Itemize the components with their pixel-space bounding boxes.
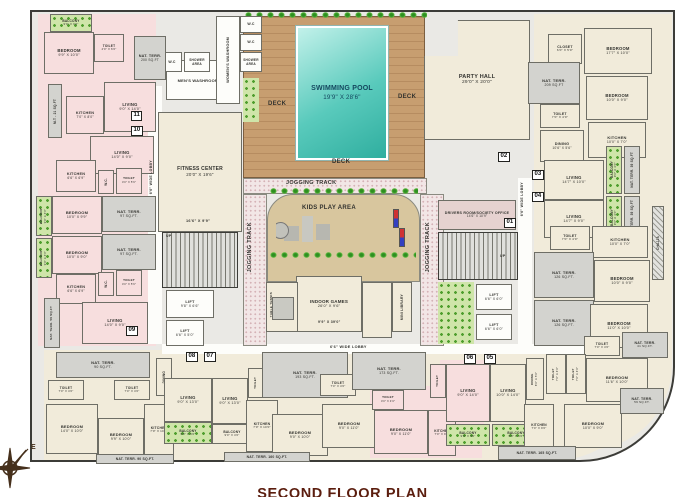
indoor-games-label: INDOOR GAMES26'0" X 9'6" [310, 299, 348, 310]
kitchen-09-dim: 6'6" X 6'9" [67, 289, 84, 293]
fitness-center-dim: 20'0" X 19'6" [186, 172, 213, 178]
mens-washroom-label: MEN'S WASHROOM [178, 78, 219, 83]
living-05: LIVING10'0" X 14'0" [490, 364, 526, 422]
nat-terr-59b-label: NAT. TERR.59 SQ.FT. [632, 397, 653, 405]
nat-terr-165-name: NAT. TERR. 165 SQ.FT. [517, 451, 558, 455]
shower-area-womens-label: SHOWER AREA [241, 58, 261, 66]
nat-terr-39a-label: NAT. TERR. 39 SQ.FT [630, 152, 634, 188]
swimming-pool-label: SWIMMING POOL19'9" X 28'6" [311, 85, 373, 101]
closet-02: CLOSET6'0" X 5'0" [548, 34, 582, 64]
play-equipment [276, 212, 334, 246]
balcony-08-dim: 9'0" X 4'0" [181, 433, 196, 437]
nat-terr-41: NAT. TERR.41 SQ.FT. [622, 332, 668, 358]
dining-03-label: DINING10'6" X 5'6" [552, 142, 571, 151]
nat-terr-90b-label: NAT. TERR. 90 SQ.FT. [116, 457, 155, 461]
wc-mens-label: W.C [168, 60, 175, 64]
nat-terr-90b: NAT. TERR. 90 SQ.FT. [96, 454, 174, 464]
balcony-10: BALCONY9'0" X 3'3" [36, 196, 52, 236]
toilet-04a-dim: 7'0" X 4'0" [562, 238, 578, 242]
toilet-10-label: TOILET4'0" X 5'6" [122, 177, 136, 184]
unit-badge-09: 09 [126, 326, 138, 336]
mt-21-label: M.T - 21 SQ.FT [53, 99, 57, 124]
table-tennis-label: TABLE TENNIS [269, 292, 273, 317]
living-04-label: LIVING14'7" X 9'0" [563, 214, 584, 224]
wc-womens-1-label: W.C [247, 22, 254, 26]
toilet-10: TOILET4'0" X 5'6" [116, 168, 142, 194]
up-label-right: UP [500, 254, 505, 258]
kitchen-03-label: KITCHEN10'0" X 7'0" [607, 135, 627, 144]
closet-02-label: CLOSET6'0" X 5'0" [557, 45, 573, 53]
lift-1: LIFT9'8" X 6'6" [166, 290, 214, 318]
party-hall-dim: 29'0" X 20'0" [462, 80, 492, 86]
toilet-06a-label: TOILET4'0" X 4'9" [381, 396, 395, 403]
lobby-label-left: 6'6" WIDE LOBBY [149, 160, 153, 194]
compass-icon: E [0, 436, 42, 494]
trees-row-boundary [243, 10, 427, 18]
closet-02-dim: 6'0" X 5'0" [557, 49, 573, 53]
bedroom-04b-label: BEDROOM11'0" X 10'0" [607, 321, 630, 331]
toilet-03-dim: 7'0" X 4'0" [552, 116, 568, 120]
kitchen-10-dim: 6'6" X 6'9" [67, 176, 84, 180]
party-hall-label: PARTY HALL29'0" X 20'0" [459, 74, 495, 87]
toilet-05a-dim: 7'0" X 4'0" [556, 367, 559, 381]
mini-library-name: MINI LIBRARY [400, 294, 404, 320]
jogging-track-label-top: JOGGING TRACK [286, 180, 336, 186]
toilet-06b-label: TOILET [436, 375, 440, 387]
bedroom-07b-label: BEDROOM9'0" X 11'0" [338, 421, 360, 430]
kitchen-09-label: KITCHEN6'6" X 6'9" [67, 285, 85, 294]
wc-womens-2: W.C [240, 34, 262, 51]
nat-terr-59b: NAT. TERR.59 SQ.FT. [620, 388, 664, 414]
lift-1-label: LIFT9'8" X 6'6" [181, 299, 199, 308]
mt-21-name: M.T - 21 SQ.FT [53, 99, 57, 124]
balcony-03: BALCONY9'0" X 4'0" [606, 146, 622, 194]
wc-09-name: W.C. [104, 280, 108, 288]
unit-badge-02: 02 [498, 152, 510, 162]
kitchen-05: KITCHEN7'0" X 9'0" [524, 404, 554, 450]
unit-badge-06: 06 [464, 354, 476, 364]
kitchen-04-dim: 10'0" X 7'0" [610, 242, 630, 246]
bedroom-11-dim: 9'9" X 10'0" [58, 53, 79, 58]
balcony-05-label: BALCONY9'0" X 4'0" [507, 431, 524, 439]
bedroom-09-label: BEDROOM10'0" X 9'0" [66, 250, 88, 259]
toilet-11: TOILET4'0" X 6'0" [94, 34, 124, 62]
kitchen-11-label: KITCHEN7'0" X 8'0" [76, 111, 94, 120]
kitchen-04-label: KITCHEN10'0" X 7'0" [610, 237, 630, 246]
lift-3: LIFT6'6" X 6'0" [476, 284, 512, 310]
shower-area-womens: SHOWER AREA [240, 52, 262, 72]
chajja-label: CHAJJA [656, 236, 660, 250]
toilet-11-label: TOILET4'0" X 6'0" [102, 44, 117, 52]
drivers-room-dim: 14'6" X 10'9" [467, 215, 487, 219]
bedroom-07b: BEDROOM9'0" X 11'0" [322, 404, 376, 448]
balcony-07-dim: 9'0" X 4'0" [225, 434, 240, 438]
living-07: LIVING9'0" X 13'0" [212, 378, 248, 424]
kitchen-07-label: KITCHEN7'0" X 10'0" [253, 422, 271, 430]
nat-terr-200-dim: 200 SQ.FT [141, 58, 159, 62]
bedroom-08b-label: BEDROOM9'9" X 10'0" [110, 432, 132, 441]
womens-washroom: WOMEN'S WASHROOM [216, 16, 240, 104]
toilet-07b-label: TOILET7'0" X 4'0" [331, 381, 346, 389]
jogging-track-label-left: JOGGING TRACK [247, 222, 253, 272]
nat-terr-173: NAT. TERR.173 SQ.FT. [352, 352, 426, 390]
nat-terr-173-dim: 173 SQ.FT. [379, 371, 399, 375]
bedroom-07a-label: BEDROOM9'0" X 10'0" [289, 430, 311, 439]
balcony-08: BALCONY9'0" X 4'0" [164, 422, 212, 444]
toilet-03: TOILET7'0" X 4'0" [540, 104, 580, 128]
living-03-dim: 14'7" X 10'0" [562, 180, 585, 185]
balcony-11-dim: 9'0" X 3'0" [64, 23, 79, 27]
balcony-04-dim: 9'0" X 4'0" [614, 211, 618, 226]
shower-area-womens-name: SHOWER AREA [241, 58, 261, 66]
indoor-games-dim-label: 9'9" X 39'0" [318, 320, 341, 324]
kitchen-05-label: KITCHEN7'0" X 9'0" [531, 423, 547, 431]
staircase-right [438, 232, 518, 280]
balcony-03-dim: 9'0" X 4'0" [614, 163, 618, 178]
nat-terr-126b-label: NAT. TERR.126 SQ.FT. [552, 318, 576, 327]
swimming-pool-dim: 19'9" X 28'6" [323, 94, 360, 102]
lift-4-dim: 6'6" X 6'0" [485, 327, 503, 331]
nat-terr-209-label: NAT. TERR.209 SQ.FT [542, 78, 566, 87]
wc-womens-1-name: W.C [247, 22, 254, 26]
nat-terr-97a-label: NAT. TERR.97 SQ.FT. [117, 209, 141, 218]
balcony-06-dim: 9'0" X 4'0" [461, 435, 476, 439]
living-09: LIVING14'0" X 9'0" [82, 302, 148, 344]
trees-row-top [268, 186, 418, 198]
unit-badge-04: 04 [532, 192, 544, 202]
lift-2: LIFT6'6" X 5'0" [166, 320, 204, 346]
toilet-07b-dim: 7'0" X 4'0" [331, 385, 346, 389]
bedroom-02a-label: BEDROOM17'7" X 10'0" [606, 46, 629, 56]
nat-terr-126a-dim: 126 SQ.FT. [554, 275, 574, 279]
bedroom-02b: BEDROOM10'0" X 9'0" [586, 76, 648, 120]
bedroom-08b: BEDROOM9'9" X 10'0" [98, 418, 144, 456]
shower-area-mens-label: SHOWER AREA [185, 58, 209, 66]
toilet-09: TOILET4'0" X 5'6" [116, 270, 142, 296]
balcony-11: BALCONY9'0" X 3'0" [50, 14, 92, 32]
living-09-dim: 14'0" X 9'0" [104, 323, 125, 328]
toilet-04b: TOILET7'0" X 4'0" [584, 336, 620, 356]
dining-05-label: DINING8'0" X 5'0" [531, 372, 538, 386]
balcony-07-label: BALCONY9'0" X 4'0" [223, 430, 240, 438]
kitchen-04: KITCHEN10'0" X 7'0" [592, 226, 648, 258]
bedroom-11: BEDROOM9'9" X 10'0" [44, 32, 94, 74]
bedroom-04a-dim: 10'0" X 9'0" [611, 281, 632, 286]
seating-area [362, 282, 392, 338]
bedroom-02a-dim: 17'7" X 10'0" [606, 51, 629, 56]
kitchen-11-dim: 7'0" X 8'0" [76, 115, 93, 119]
bedroom-04b-dim: 11'0" X 10'0" [607, 326, 630, 331]
lift-3-dim: 6'6" X 6'0" [485, 297, 503, 301]
trees-row-mid [268, 250, 416, 262]
nat-terr-193-dim: 193 SQ.FT. [295, 375, 315, 379]
lift-4-label: LIFT6'6" X 6'0" [485, 322, 503, 331]
nat-terr-90a: NAT. TERR.90 SQ.FT. [56, 352, 150, 378]
balcony-05-dim: 9'0" X 4'0" [509, 435, 524, 439]
balcony-11-label: BALCONY9'0" X 3'0" [62, 19, 79, 27]
drivers-room-label: DRIVERS ROOM/SOCIETY OFFICE14'6" X 10'9" [445, 211, 509, 219]
living-07-label: LIVING9'0" X 13'0" [219, 396, 240, 406]
balcony-09: BALCONY9'0" X 3'3" [36, 238, 52, 278]
bedroom-08a-dim: 14'0" X 10'0" [61, 429, 83, 433]
balcony-06-label: BALCONY9'0" X 4'0" [459, 431, 476, 439]
deck-label-left: DECK [268, 101, 286, 107]
fitness-center-label: FITNESS CENTER20'0" X 19'6" [177, 166, 223, 178]
nat-terr-209: NAT. TERR.209 SQ.FT [528, 62, 580, 104]
nat-terr-165: NAT. TERR. 165 SQ.FT. [498, 446, 576, 460]
nat-terr-126a-label: NAT. TERR.126 SQ.FT. [552, 270, 576, 279]
toilet-03-label: TOILET7'0" X 4'0" [552, 112, 568, 120]
lobby-label-bottom: 6'6" WIDE LOBBY [330, 345, 367, 349]
toilet-05b-dim: 7'0" X 4'0" [576, 367, 579, 381]
toilet-04a-label: TOILET7'0" X 4'0" [562, 234, 578, 242]
lift-1-dim: 9'8" X 6'6" [181, 304, 199, 308]
living-10-dim: 14'0" X 9'0" [111, 155, 132, 160]
nat-terr-39a-name: NAT. TERR. 39 SQ.FT [630, 152, 634, 188]
kitchen-05-dim: 7'0" X 9'0" [532, 427, 547, 431]
mini-library-label: MINI LIBRARY [400, 294, 404, 320]
kitchen-10: KITCHEN6'6" X 6'9" [56, 160, 96, 192]
bedroom-05b: BEDROOM10'0" X 9'0" [564, 404, 622, 448]
wc-09: W.C. [98, 272, 114, 296]
toilet-09-dim: 4'0" X 5'6" [122, 283, 136, 286]
bedroom-05a-label: BEDROOM11'6" X 10'0" [606, 375, 628, 384]
unit-badge-11: 11 [131, 111, 142, 121]
bedroom-02b-label: BEDROOM10'0" X 9'0" [605, 93, 628, 103]
toilet-07a-name: TOILET [254, 377, 258, 389]
compass-e-label: E [31, 444, 36, 451]
toilet-04b-dim: 7'0" X 4'0" [595, 346, 610, 350]
toilet-04a: TOILET7'0" X 4'0" [550, 226, 590, 250]
chajja-name: CHAJJA [656, 236, 660, 250]
nat-terr-193-label: NAT. TERR.193 SQ.FT. [293, 370, 317, 379]
lift-2-dim: 6'6" X 5'0" [176, 333, 194, 337]
bedroom-10: BEDROOM10'0" X 9'9" [52, 196, 102, 234]
bedroom-07a: BEDROOM9'0" X 10'0" [272, 414, 328, 456]
jogging-track-label-right: JOGGING TRACK [425, 222, 431, 272]
womens-washroom-name: WOMEN'S WASHROOM [226, 37, 231, 83]
bedroom-05b-dim: 10'0" X 9'0" [583, 426, 603, 430]
kitchen-10-label: KITCHEN6'6" X 6'9" [67, 172, 85, 181]
chajja: CHAJJA [652, 206, 664, 280]
balcony-10-dim: 9'0" X 3'3" [44, 209, 47, 223]
bedroom-10-dim: 10'0" X 9'9" [67, 215, 87, 219]
living-04-dim: 14'7" X 9'0" [563, 219, 584, 224]
bedroom-02b-dim: 10'0" X 9'0" [606, 98, 627, 103]
kitchen-09: KITCHEN6'6" X 6'9" [56, 274, 96, 304]
toilet-08a-label: TOILET7'0" X 4'0" [59, 386, 74, 394]
plan-title: SECOND FLOOR PLAN [20, 486, 665, 497]
kitchen-03-dim: 10'0" X 7'0" [607, 140, 627, 144]
nat-terr-165-label: NAT. TERR. 165 SQ.FT. [517, 451, 558, 455]
fitness-dim-label: 16'6" X 9'9" [186, 219, 210, 223]
wc-womens-1: W.C [240, 16, 262, 33]
bedroom-06-dim: 9'0" X 11'0" [391, 432, 411, 436]
toilet-06b-name: TOILET [436, 375, 440, 387]
living-08-dim: 9'0" X 13'0" [177, 400, 198, 405]
deck-label-right: DECK [398, 94, 416, 100]
dining-05: DINING8'0" X 5'0" [526, 358, 544, 400]
lift-3-label: LIFT6'6" X 6'0" [485, 292, 503, 301]
living-03: LIVING14'7" X 10'0" [544, 160, 604, 200]
unit-badge-05: 05 [484, 354, 496, 364]
mens-washroom-name: MEN'S WASHROOM [178, 78, 219, 83]
nat-terr-90b-name: NAT. TERR. 90 SQ.FT. [116, 457, 155, 461]
wc-10: W.C. [98, 170, 114, 194]
nat-terr-97b-label: NAT. TERR.97 SQ.FT. [117, 247, 141, 256]
nat-terr-209-dim: 209 SQ.FT [544, 83, 563, 87]
bedroom-06: BEDROOM9'0" X 11'0" [374, 410, 428, 454]
nat-terr-59a: NAT. TERR. 59 SQ.FT [44, 298, 60, 348]
living-05-dim: 10'0" X 14'0" [496, 393, 519, 398]
toilet-05a: TOILET7'0" X 4'0" [546, 354, 566, 394]
bedroom-04a-label: BEDROOM10'0" X 9'0" [610, 276, 633, 286]
living-06: LIVING9'0" X 14'0" [446, 364, 490, 422]
nat-terr-59b-dim: 59 SQ.FT. [634, 401, 650, 405]
toilet-08a-dim: 7'0" X 4'0" [59, 390, 74, 394]
wc-womens-2-name: W.C [247, 40, 254, 44]
toilet-04b-label: TOILET7'0" X 4'0" [595, 342, 610, 350]
wc-09-label: W.C. [104, 280, 108, 288]
toilet-09-label: TOILET4'0" X 5'6" [122, 279, 136, 286]
nat-terr-126b-dim: 126 SQ.FT. [554, 323, 574, 327]
unit-badge-07: 07 [204, 352, 216, 362]
toilet-05a-label: TOILET7'0" X 4'0" [552, 367, 559, 381]
nat-terr-97b: NAT. TERR.97 SQ.FT. [102, 234, 156, 270]
nat-terr-200: NAT. TERR.200 SQ.FT [134, 36, 166, 80]
nat-terr-59a-label: NAT. TERR. 59 SQ.FT [50, 306, 54, 340]
up-label-left: UP [166, 234, 171, 238]
bedroom-08a: BEDROOM14'0" X 10'0" [46, 404, 98, 454]
indoor-games-dim: 26'0" X 9'6" [318, 304, 341, 309]
living-05-label: LIVING10'0" X 14'0" [496, 388, 519, 398]
toilet-05b: TOILET7'0" X 4'0" [566, 354, 586, 394]
nat-terr-173-label: NAT. TERR.173 SQ.FT. [377, 366, 401, 375]
nat-terr-97a: NAT. TERR.97 SQ.FT. [102, 196, 156, 232]
nat-terr-97b-dim: 97 SQ.FT. [120, 252, 138, 256]
bedroom-07b-dim: 9'0" X 11'0" [339, 426, 359, 430]
lobby-label-right: 6'6" WIDE LOBBY [520, 182, 524, 216]
balcony-04-label: BALCONY9'0" X 4'0" [610, 209, 618, 226]
kitchen-11: KITCHEN7'0" X 8'0" [66, 96, 104, 134]
womens-washroom-label: WOMEN'S WASHROOM [226, 37, 231, 83]
nat-terr-90a-label: NAT. TERR.90 SQ.FT. [91, 360, 115, 369]
wc-10-label: W.C. [104, 178, 108, 186]
bedroom-05b-label: BEDROOM10'0" X 9'0" [582, 421, 604, 430]
bedroom-06-label: BEDROOM9'0" X 11'0" [390, 427, 412, 436]
toilet-05b-label: TOILET7'0" X 4'0" [572, 367, 579, 381]
living-09-label: LIVING14'0" X 9'0" [104, 318, 125, 328]
kids-play-area-label: KIDS PLAY AREA [302, 205, 356, 211]
mini-library: MINI LIBRARY [392, 282, 412, 332]
toilet-07b: TOILET7'0" X 4'0" [320, 374, 356, 396]
nat-terr-126a: NAT. TERR.126 SQ.FT. [534, 252, 594, 298]
bedroom-08a-label: BEDROOM14'0" X 10'0" [61, 424, 83, 433]
nat-terr-97a-dim: 97 SQ.FT. [120, 214, 138, 218]
nat-terr-200-label: NAT. TERR.200 SQ.FT [139, 54, 162, 63]
living-03-label: LIVING14'7" X 10'0" [562, 175, 585, 185]
nat-terr-90a-dim: 90 SQ.FT. [94, 365, 112, 369]
fitness-center: FITNESS CENTER20'0" X 19'6" [158, 112, 242, 232]
toilet-08b-dim: 7'0" X 4'0" [125, 390, 140, 394]
wc-mens-name: W.C [168, 60, 175, 64]
bedroom-08b-dim: 9'9" X 10'0" [111, 437, 131, 441]
dining-03: DINING10'6" X 5'6" [540, 130, 584, 162]
balcony-03-label: BALCONY9'0" X 4'0" [610, 161, 618, 178]
staircase-left [162, 232, 238, 288]
deck-label-bottom: DECK [332, 159, 350, 165]
balcony-10-label: BALCONY9'0" X 3'3" [40, 208, 47, 224]
balcony-06: BALCONY9'0" X 4'0" [446, 424, 490, 446]
bedroom-09-dim: 10'0" X 9'0" [67, 255, 87, 259]
unit-badge-10: 10 [131, 126, 143, 136]
toilet-06a-dim: 4'0" X 4'9" [381, 400, 395, 403]
lift-4: LIFT6'6" X 6'0" [476, 314, 512, 340]
toilet-08b-label: TOILET7'0" X 4'0" [125, 386, 140, 394]
living-06-dim: 9'0" X 14'0" [457, 393, 478, 398]
unit-badge-03: 03 [532, 170, 544, 180]
nat-terr-39a: NAT. TERR. 39 SQ.FT [624, 146, 640, 194]
lift-2-label: LIFT6'6" X 5'0" [176, 328, 194, 337]
nat-terr-160-name: NAT. TERR. 160 SQ.FT. [247, 455, 288, 459]
seesaw-icons [392, 208, 406, 248]
kitchen-07-dim: 7'0" X 10'0" [253, 426, 271, 430]
bedroom-02a: BEDROOM17'7" X 10'0" [584, 28, 652, 74]
nat-terr-160: NAT. TERR. 160 SQ.FT. [224, 452, 310, 462]
shower-area-mens-name: SHOWER AREA [185, 58, 209, 66]
bedroom-05a-dim: 11'6" X 10'0" [606, 380, 628, 384]
planter-strip [438, 282, 474, 344]
nat-terr-160-label: NAT. TERR. 160 SQ.FT. [247, 455, 288, 459]
living-11: LIVING9'0" X 14'0" [104, 82, 156, 132]
toilet-08b: TOILET7'0" X 4'0" [114, 380, 150, 400]
living-07-dim: 9'0" X 13'0" [219, 401, 240, 406]
toilet-07a-label: TOILET [254, 377, 258, 389]
toilet-06b: TOILET [430, 364, 446, 398]
balcony-08-label: BALCONY9'0" X 4'0" [179, 429, 196, 437]
bedroom-11-label: BEDROOM9'9" X 10'0" [57, 48, 80, 58]
living-08-label: LIVING9'0" X 13'0" [177, 395, 198, 405]
toilet-08a: TOILET7'0" X 4'0" [48, 380, 84, 400]
unit-badge-08: 08 [186, 352, 198, 362]
nat-terr-59a-name: NAT. TERR. 59 SQ.FT [50, 306, 54, 340]
unit-badge-01: 01 [504, 218, 516, 228]
toilet-06a: TOILET4'0" X 4'9" [372, 390, 404, 410]
bedroom-09: BEDROOM10'0" X 9'0" [52, 236, 102, 274]
wc-10-name: W.C. [104, 178, 108, 186]
planter-deck-left [243, 78, 259, 122]
swimming-pool-name: SWIMMING POOL [311, 85, 373, 94]
balcony-09-label: BALCONY9'0" X 3'3" [40, 250, 47, 266]
toilet-10-dim: 4'0" X 5'6" [122, 181, 136, 184]
wc-womens-2-label: W.C [247, 40, 254, 44]
bedroom-07a-dim: 9'0" X 10'0" [290, 435, 310, 439]
mt-21: M.T - 21 SQ.FT [48, 84, 62, 138]
nat-terr-41-dim: 41 SQ.FT. [637, 345, 653, 349]
floor-plan-page: SECOND FLOOR PLAN E SWIMMING POOL19'9" X… [0, 0, 682, 497]
living-08: LIVING9'0" X 13'0" [164, 378, 212, 422]
bedroom-10-label: BEDROOM10'0" X 9'9" [66, 210, 88, 219]
dining-05-dim: 8'0" X 5'0" [535, 372, 538, 386]
shower-area-mens: SHOWER AREA [184, 52, 210, 72]
toilet-11-dim: 4'0" X 6'0" [102, 48, 117, 52]
living-06-label: LIVING9'0" X 14'0" [457, 388, 478, 398]
dining-03-dim: 10'6" X 5'6" [552, 146, 571, 150]
nat-terr-41-label: NAT. TERR.41 SQ.FT. [635, 341, 656, 349]
swimming-pool: SWIMMING POOL19'9" X 28'6" [296, 26, 388, 160]
balcony-09-dim: 9'0" X 3'3" [44, 251, 47, 265]
bedroom-04a: BEDROOM10'0" X 9'0" [594, 260, 650, 302]
